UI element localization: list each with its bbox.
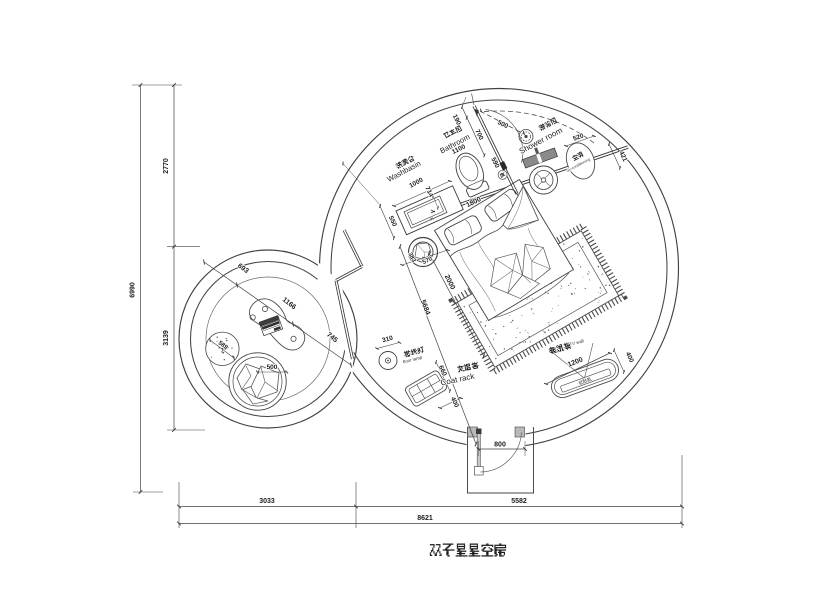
svg-text:3033: 3033 bbox=[259, 498, 275, 505]
svg-text:8621: 8621 bbox=[417, 515, 433, 522]
svg-text:3139: 3139 bbox=[163, 330, 170, 346]
svg-text:800: 800 bbox=[494, 442, 506, 449]
svg-text:500: 500 bbox=[267, 364, 278, 371]
svg-text:5582: 5582 bbox=[511, 498, 527, 505]
svg-text:2770: 2770 bbox=[163, 158, 170, 174]
svg-text:6990: 6990 bbox=[130, 282, 137, 298]
